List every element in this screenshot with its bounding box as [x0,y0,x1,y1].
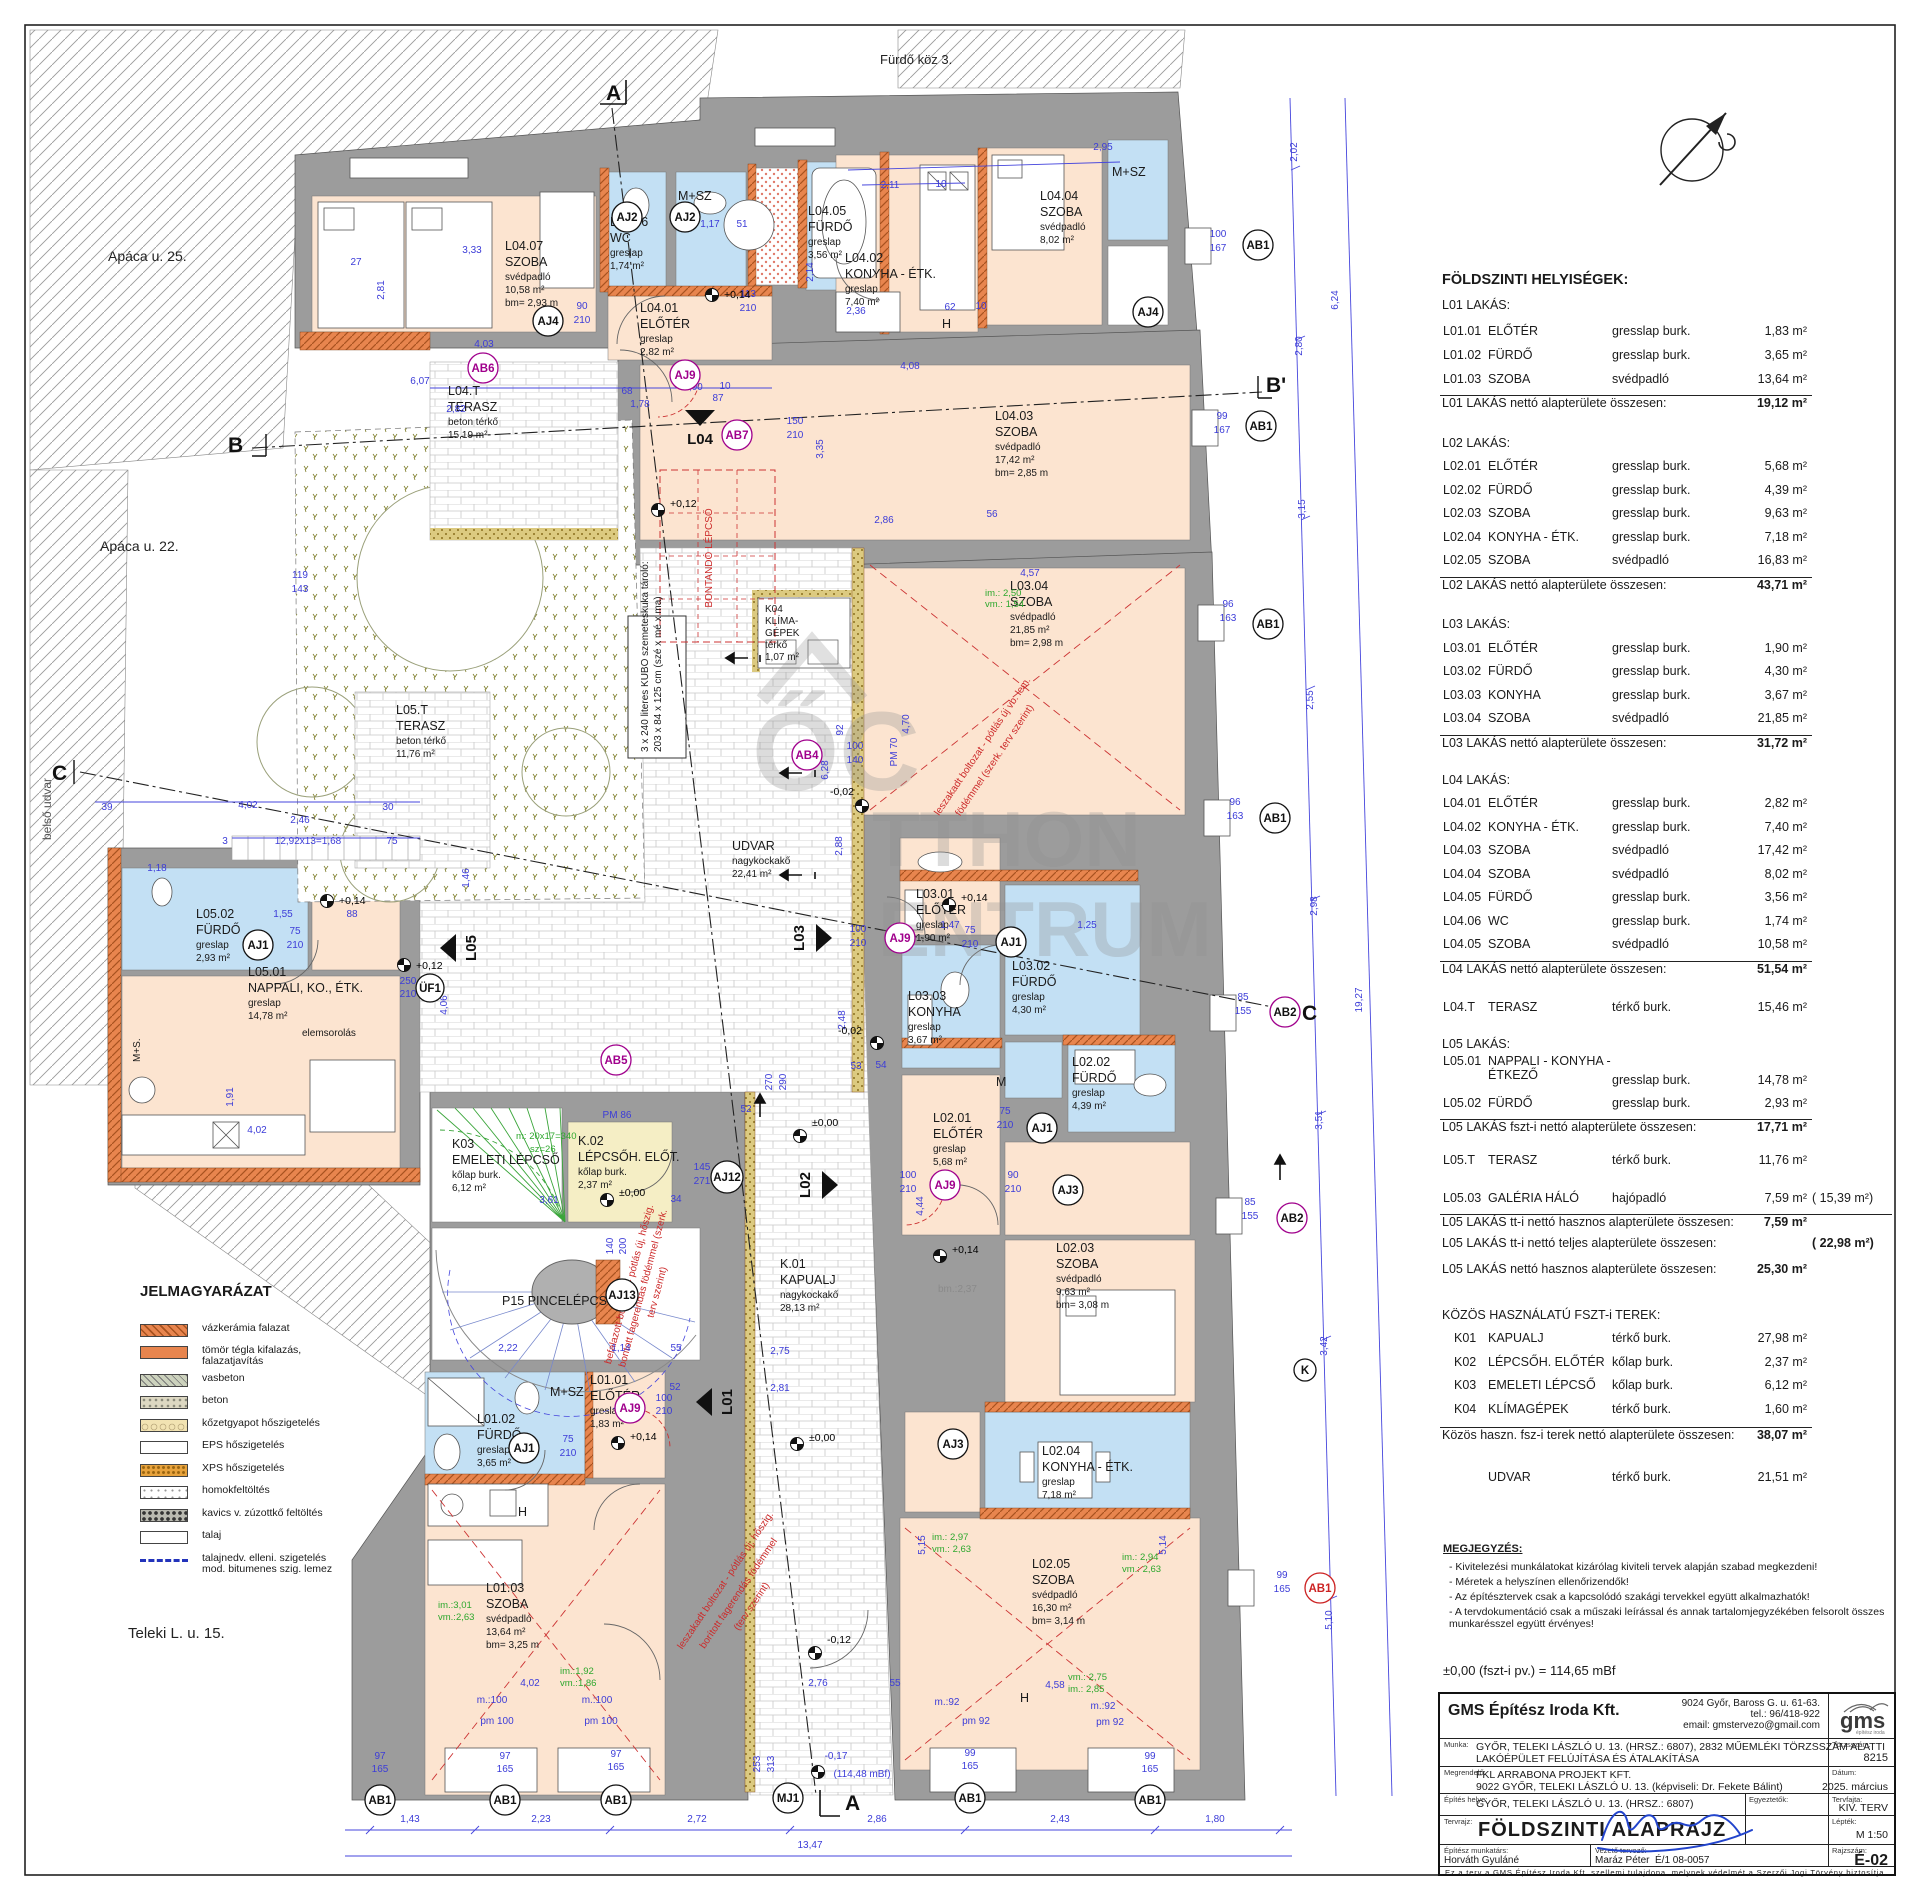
dim: 62 [944,302,956,313]
marker-ab1: AB1 [1263,813,1287,825]
dim: 1,46 [461,868,472,888]
dim: 75 [562,1434,574,1445]
room-label: WC [610,231,631,245]
schedule-row: L04.04SZOBAsvédpadló8,02 m² [1440,867,1892,891]
dim: 75 [289,926,301,937]
room-area: 1,74 m² [1695,914,1807,928]
room-name: FÜRDŐ [1488,348,1532,362]
dim: 2,82 [446,404,466,415]
room-label: L01.02 [477,1412,515,1426]
dim: 3,33 [462,245,482,256]
flag-l02: L02 [797,1172,814,1198]
group-header: L04 LAKÁS: [1442,773,1510,787]
green-note: im.: 2,97 [932,1532,968,1543]
room-id: L04.03 [1443,843,1481,857]
room-label: L04.04 [1040,189,1078,203]
room-label: L02.05 [1032,1557,1070,1571]
dim: 155 [1235,1006,1252,1017]
dim: m.:92 [934,1697,959,1708]
room-label: L04.02 [845,251,883,265]
dim: 167 [1210,243,1227,254]
legend-item: vasbeton [140,1373,440,1395]
legend-label: vasbeton [202,1373,245,1384]
legend-label: XPS hőszigetelés [202,1463,284,1474]
room-label: LÉPCSŐH. ELŐT. [578,1149,679,1164]
legend-label: talaj [202,1530,221,1541]
dim: 2,88 [834,836,845,856]
room-area: 7,40 m² [1695,820,1807,834]
dim: 96 [1222,599,1234,610]
room-label: K.01 [780,1257,806,1271]
total-label: L05 LAKÁS tt-i nettó hasznos alapterület… [1442,1215,1734,1229]
room-finish: svédpadló [1612,867,1669,881]
note-item: - Méretek a helyszínen ellenőrizendők! [1449,1576,1913,1588]
room-label: L01.01 [590,1373,628,1387]
level: +0,12 [416,960,443,972]
watermark-line1: TTHON [872,795,1141,883]
dim: 140 [847,755,864,766]
dim: 56 [986,509,998,520]
room-finish: gresslap burk. [1612,890,1691,904]
room-label: 7,18 m² [1042,1490,1077,1501]
dim: 4,03 [474,339,494,350]
drawing-sheet: ŐC TTHON ENTRUM L04.07SZOBAsvédpadló10,5… [0,0,1920,1900]
room-label: 11,76 m² [396,749,435,760]
room-label: NAPPALI, KO., ÉTK. [248,980,363,995]
room-label: L04.03 [995,409,1033,423]
company-address: 9024 Győr, Baross G. u. 61-63. tel.: 96/… [1590,1698,1820,1731]
green-note: vm.:2,63 [438,1612,474,1623]
legend-swatch-talaj [140,1531,188,1544]
room-label: M+SZ [678,189,712,203]
room-id: L05.T [1443,1153,1475,1167]
flag-l01: L01 [719,1389,736,1415]
dim: 30 [382,802,394,813]
room-area: 1,60 m² [1695,1402,1807,1416]
room-name: GALÉRIA HÁLÓ [1488,1191,1579,1205]
dim: 210 [740,303,757,314]
dim: 4,02 [238,800,258,811]
legend-label: talajnedv. elleni. szigetelés mod. bitum… [202,1553,332,1575]
room-label: SZOBA [1056,1257,1099,1271]
dim: 2,98 [1309,896,1320,916]
dim: 210 [900,1184,917,1195]
kubo-label: 3 x 240 literes KUBO szemeteskuka tároló… [640,561,651,752]
room-area: 17,42 m² [1695,843,1807,857]
room-name: EMELETI LÉPCSŐ [1488,1378,1596,1392]
dim: 68 [621,386,633,397]
room-label: 21,85 m² [1010,625,1050,636]
dim: 2,75 [770,1346,790,1357]
dim: 210 [574,315,591,326]
room-label: 10,58 m² [505,285,545,296]
dim: 1,80 [1205,1814,1225,1825]
room-name: ELŐTÉR [1488,459,1538,473]
room-label: 6,12 m² [452,1183,487,1194]
schedule-row: L03.03KONYHAgresslap burk.3,67 m² [1440,688,1892,712]
room-label: greslap [1072,1088,1105,1099]
room-label: greslap [477,1445,510,1456]
level: -0,02 [830,786,854,798]
room-finish: gresslap burk. [1612,664,1691,678]
room-label: M [996,1075,1006,1089]
room-finish: kőlap burk. [1612,1355,1673,1369]
room-name: SZOBA [1488,506,1530,520]
room-area: 2,93 m² [1695,1096,1807,1110]
level: ±0,00 [619,1187,645,1199]
room-label: 16,30 m² [1032,1603,1072,1614]
dim: 3,15 [1297,499,1308,519]
marker-aj2: AJ2 [616,212,637,224]
dim: 5,15 [917,1535,928,1555]
dim: 313 [766,1755,777,1772]
dim: 210 [787,430,804,441]
dim: 75 [999,1106,1011,1117]
marker-aj3: AJ3 [942,1439,963,1451]
dim: 1,25 [1077,920,1097,931]
room-label: M+S. [132,1038,143,1062]
room-name: FÜRDŐ [1488,890,1532,904]
room-area: 7,59 m² [1695,1191,1807,1205]
dim: 3,42 [1319,1336,1330,1356]
room-name: KONYHA [1488,688,1541,702]
red-note: BONTANDÓ LÉPCSŐ [701,508,715,607]
dim: 55 [670,1343,682,1354]
appliance-label: H [942,317,951,331]
room-label: L04.01 [640,301,678,315]
group-header: L03 LAKÁS: [1442,617,1510,631]
dim: 97 [374,1751,386,1762]
room-area: 6,12 m² [1695,1378,1807,1392]
room-area: 21,51 m² [1695,1470,1807,1484]
appliance-label: H [518,1505,527,1519]
dim: 27 [350,257,362,268]
marker-ab1: AB1 [493,1795,517,1807]
room-label: svédpadló [1040,222,1086,233]
legend-item: vázkerámia falazat [140,1323,440,1345]
dim: 97 [499,1751,511,1762]
room-label: 9,63 m² [1056,1287,1091,1298]
room-label: KAPUALJ [780,1273,836,1287]
room-name: FÜRDŐ [1488,664,1532,678]
green-note: im.:1,92 [560,1666,594,1677]
dim: 119 [292,570,308,581]
dim: m.:100 [477,1695,508,1706]
room-area: 10,58 m² [1695,937,1807,951]
dim: 5,14 [1158,1535,1169,1555]
total-label: Közös haszn. fsz-i terek nettó alapterül… [1442,1428,1735,1442]
room-label: greslap [640,334,673,345]
room-label: bm= 3,25 m [486,1640,539,1651]
gms-logo: gmsépítész iroda [1830,1696,1894,1736]
room-label: greslap [610,248,643,259]
green-note: m: 20x17=340 [516,1131,576,1142]
dim: 210 [656,1406,673,1417]
total-label: L04 LAKÁS nettó alapterülete összesen: [1442,962,1666,976]
copyright: Ez a terv a GMS Építész Iroda Kft. szell… [1445,1868,1887,1877]
room-label: SZOBA [1032,1573,1075,1587]
dim: 51 [736,219,748,230]
total-label: L05 LAKÁS tt-i nettó teljes alapterülete… [1442,1236,1716,1250]
room-label: FÜRDŐ [1072,1070,1117,1085]
room-id: L02.04 [1443,530,1481,544]
total-label: L01 LAKÁS nettó alapterülete összesen: [1442,396,1666,410]
dim: 100 [850,924,867,935]
schedule-row: L05.03GALÉRIA HÁLÓhajópadló7,59 m²( 15,3… [1440,1191,1892,1215]
room-area: 3,67 m² [1695,688,1807,702]
room-finish: gresslap burk. [1612,796,1691,810]
dim: 4,08 [900,361,920,372]
schedule-row: L02.03SZOBAgresslap burk.9,63 m² [1440,506,1892,530]
schedule-total: L05 LAKÁS tt-i nettó teljes alapterülete… [1440,1236,1892,1260]
level: ±0,00 [812,1117,838,1129]
room-area: 14,78 m² [1695,1073,1807,1087]
dim: 6,28 [820,760,831,780]
dim: 3,51 [1314,1110,1325,1130]
dim: 210 [287,940,304,951]
room-area: 1,90 m² [1695,641,1807,655]
room-label: L04.T [448,384,480,398]
room-id: L04.T [1443,1000,1475,1014]
schedule-group-header: L02 LAKÁS: [1440,436,1892,460]
schedule-row: L03.02FÜRDŐgresslap burk.4,30 m² [1440,664,1892,688]
legend-item: homokfeltöltés [140,1485,440,1507]
room-id: L02.05 [1443,553,1481,567]
room-label: greslap [1012,992,1045,1003]
legend-swatch-homok [140,1486,188,1499]
room-label: nagykockakő [732,856,791,867]
room-label: SZOBA [1040,205,1083,219]
schedule-row: K03EMELETI LÉPCSŐkőlap burk.6,12 m² [1440,1378,1892,1402]
marker-uf1: ÜF1 [419,982,441,995]
marker-ab1: AB1 [1249,421,1273,433]
marker-ab1: AB1 [1308,1583,1332,1595]
dim: 96 [1229,797,1241,808]
dim: 99 [964,1748,976,1759]
schedule-row: L04.06WCgresslap burk.1,74 m² [1440,914,1892,938]
room-id: L03.03 [1443,688,1481,702]
dim: 1,91 [225,1087,236,1107]
room-label: KLÍMA- [765,614,798,627]
schedule-group-header: L04 LAKÁS: [1440,773,1892,797]
room-label: ELŐTÉR [933,1126,983,1141]
schedule-total: L05 LAKÁS fszt-i nettó alapterülete össz… [1440,1119,1812,1144]
room-label: L01.03 [486,1581,524,1595]
room-id: L02.02 [1443,483,1481,497]
schedule-row: L04.05FÜRDŐgresslap burk.3,56 m² [1440,890,1892,914]
room-name: ELŐTÉR [1488,641,1538,655]
dim: 2,02 [1289,142,1300,162]
room-label: kőlap burk. [578,1167,627,1178]
dim: 90 [1007,1170,1019,1181]
dim: 155 [1242,1211,1259,1222]
room-finish: térkő burk. [1612,1402,1671,1416]
room-label: L05.T [396,703,428,717]
room-label: L04.05 [808,204,846,218]
dim: 52 [740,1104,752,1115]
dim: 165 [962,1761,979,1772]
room-label: UDVAR [732,839,775,853]
marker-ab1: AB1 [1246,240,1270,252]
note-item: - Az építésztervek csak a kapcsolódó sza… [1449,1591,1913,1603]
total-label: L05 LAKÁS nettó hasznos alapterülete öss… [1442,1262,1717,1276]
room-label: 8,02 m² [1040,235,1075,246]
note-item: - A tervdokumentáció csak a műszaki leír… [1449,1606,1913,1630]
room-finish: gresslap burk. [1612,530,1691,544]
room-name: SZOBA [1488,867,1530,881]
schedule-row: L04.05SZOBAsvédpadló10,58 m² [1440,937,1892,961]
level: +0,14 [630,1431,657,1443]
total-label: L02 LAKÁS nettó alapterülete összesen: [1442,578,1666,592]
room-id: L04.06 [1443,914,1481,928]
flag-b2: B' [1266,374,1286,397]
marker-aj9: AJ9 [619,1403,640,1415]
room-area: 8,02 m² [1695,867,1807,881]
room-label: bm= 2,85 m [995,468,1048,479]
legend-label: EPS hőszigetelés [202,1440,284,1451]
room-name: KONYHA - ÉTK. [1488,820,1579,834]
room-label: 1,90 m² [916,933,951,944]
room-label: beton térkő [396,736,446,747]
dim: 2,14 [805,262,816,282]
room-label: ELŐTÉR [916,902,966,917]
field-label: Törzsszám: [1832,1740,1871,1749]
field-label: Lépték: [1832,1817,1857,1826]
dim: 34 [670,1194,682,1205]
room-label: svédpadló [1056,1274,1102,1285]
room-area: 2,37 m² [1695,1355,1807,1369]
room-id: L01.02 [1443,348,1481,362]
dim: 165 [1142,1764,1159,1775]
schedule-total: L03 LAKÁS nettó alapterülete összesen:31… [1440,735,1812,760]
green-note: vm.: 1,54 [985,599,1024,610]
total-label: L03 LAKÁS nettó alapterülete összesen: [1442,736,1666,750]
schedule-row: L05.01NAPPALI - KONYHA - ÉTKEZŐgresslap … [1440,1054,1892,1092]
room-finish: kőlap burk. [1612,1378,1673,1392]
project-title: GYŐR, TELEKI LÁSZLÓ U. 13. (HRSZ.: 6807)… [1476,1741,1885,1765]
dim: 270 [764,1073,775,1090]
room-label: L03.02 [1012,959,1050,973]
green-note: vm.: 2,75 [1068,1672,1107,1683]
room-area: 3,65 m² [1695,348,1807,362]
schedule-row: L04.01ELŐTÉRgresslap burk.2,82 m² [1440,796,1892,820]
legend-item: talajnedv. elleni. szigetelés mod. bitum… [140,1553,440,1575]
room-label: 13,64 m² [486,1627,526,1638]
room-label: beton térkő [448,417,498,428]
field-label: Munka: [1444,1740,1469,1749]
dim: 92 [835,724,846,736]
total-area: 17,71 m² [1695,1120,1807,1134]
room-label: K.02 [578,1134,604,1148]
dim: 165 [372,1764,389,1775]
room-name: SZOBA [1488,553,1530,567]
schedule-row: UDVARtérkő burk.21,51 m² [1440,1470,1892,1494]
legend-item: tömör tégla kifalazás, falazatjavítás [140,1345,440,1367]
room-label: svédpadló [1010,612,1056,623]
marker-ab1: AB1 [1256,619,1280,631]
room-finish: gresslap burk. [1612,483,1691,497]
room-label: svédpadló [995,442,1041,453]
dim: 4,44 [915,1196,926,1216]
legend-item: EPS hőszigetelés [140,1440,440,1462]
room-area: 21,85 m² [1695,711,1807,725]
room-finish: gresslap burk. [1612,1096,1691,1110]
dim: 163 [1220,613,1237,624]
room-name: UDVAR [1488,1470,1531,1484]
room-label: 1,74 m² [610,261,645,272]
flag-c2: C [1302,1002,1317,1025]
total-area-paren: ( 22,98 m²) [1812,1236,1892,1250]
schedule-row: K02LÉPCSŐH. ELŐTÉRkőlap burk.2,37 m² [1440,1355,1892,1379]
dim: 54 [875,1060,887,1071]
dim: 210 [997,1120,1014,1131]
dim: 10 [935,179,947,190]
dim: 1,18 [147,863,167,874]
legend-label: tömör tégla kifalazás, falazatjavítás [202,1345,301,1367]
marker-ab4: AB4 [795,750,819,762]
flag-a-top: A [606,82,621,105]
dim: 1,43 [400,1814,420,1825]
level: +0,14 [724,289,751,301]
dim: 2,72 [687,1814,707,1825]
dim: 2,55 [1305,690,1316,710]
room-label: SZOBA [486,1597,529,1611]
room-id: L02.03 [1443,506,1481,520]
dim: 210 [400,989,417,1000]
room-finish: svédpadló [1612,843,1669,857]
legend-swatch-beton [140,1396,188,1409]
room-id: L05.03 [1443,1191,1481,1205]
dim: 2,76 [808,1678,828,1689]
dim: 200 [618,1237,629,1254]
room-schedule: FÖLDSZINTI HELYISÉGEK: L01 LAKÁS: L01.01… [1440,215,1892,1535]
schedule-row: L02.04KONYHA - ÉTK.gresslap burk.7,18 m² [1440,530,1892,554]
room-label: greslap [1042,1477,1075,1488]
room-id: K04 [1454,1402,1476,1416]
title-block: GMS Építész Iroda Kft. 9024 Győr, Baross… [1438,1692,1896,1876]
room-id: L04.02 [1443,820,1481,834]
dim: 3 [222,836,228,847]
logo-subtext: építész iroda [1856,1730,1885,1736]
schedule-title: FÖLDSZINTI HELYISÉGEK: [1442,272,1628,288]
field-label: Tervrajz: [1444,1817,1472,1826]
room-name: SZOBA [1488,843,1530,857]
dim: 100 [900,1170,917,1181]
dim: 2,43 [1050,1814,1070,1825]
room-finish: gresslap burk. [1612,348,1691,362]
marker-aj1: AJ1 [1031,1123,1053,1135]
room-id: L03.04 [1443,711,1481,725]
total-area: 19,12 m² [1695,396,1807,410]
dim: 2,81 [770,1383,790,1394]
dim: 85 [1237,992,1249,1003]
dim: 2,11 [881,180,900,191]
room-label: TERASZ [396,719,446,733]
flag-l04: L04 [687,431,714,448]
dim: 75 [386,836,398,847]
schedule-row: L02.01ELŐTÉRgresslap burk.5,68 m² [1440,459,1892,483]
dim: 150 [787,416,804,427]
room-label: bm= 3,08 m [1056,1300,1109,1311]
dim: 145 [694,1162,711,1173]
field-label: Építész munkatárs: [1444,1846,1508,1855]
level: -0,12 [827,1634,851,1646]
green-note: im.: 2,50 [985,588,1021,599]
dim: 6,07 [410,376,430,387]
marker-ab1: AB1 [368,1795,392,1807]
schedule-total: L04 LAKÁS nettó alapterülete összesen:51… [1440,961,1812,986]
level: +0,14 [952,1244,979,1256]
